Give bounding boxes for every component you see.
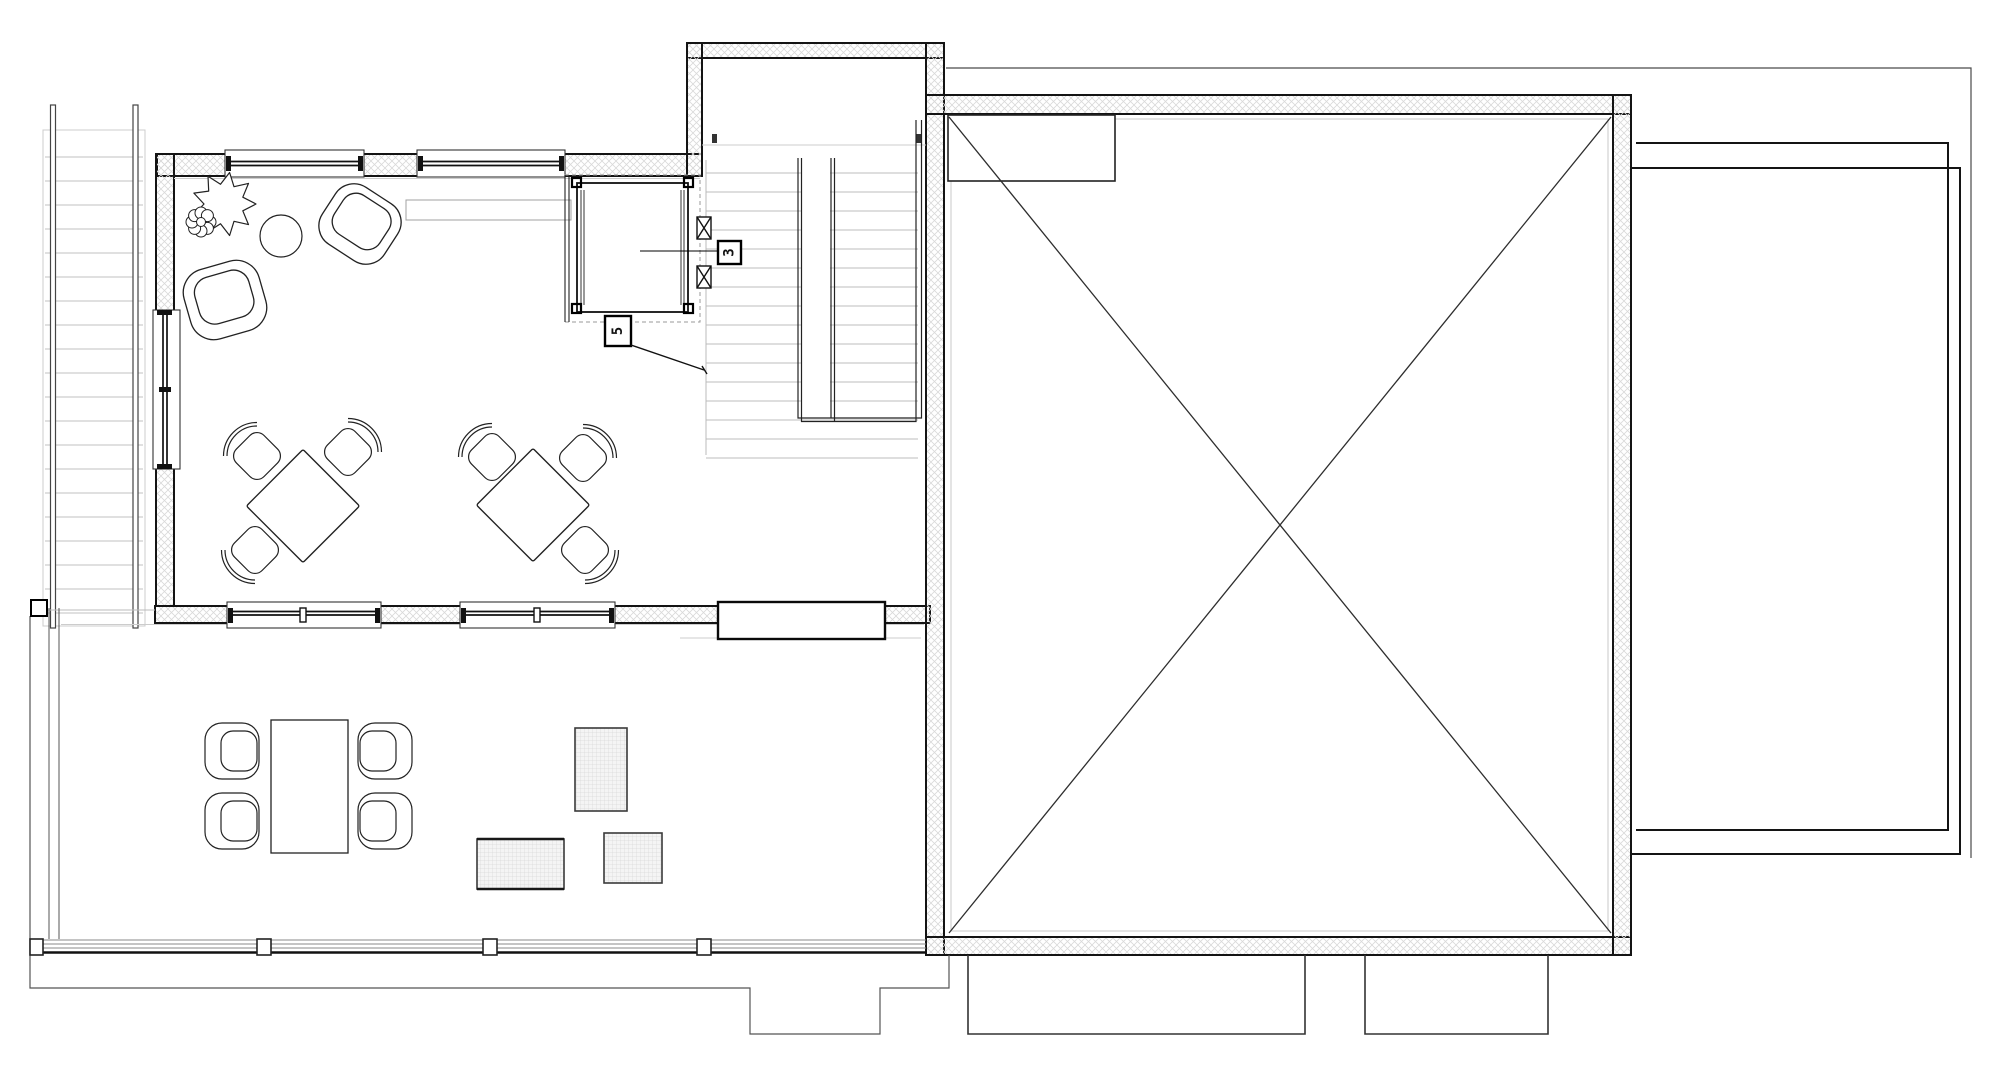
wall-void-bottom xyxy=(926,937,1631,955)
mat-small xyxy=(604,833,662,883)
exterior-stair xyxy=(43,105,145,628)
wall-void-right xyxy=(1613,95,1631,955)
mat-vertical xyxy=(575,728,627,811)
roof-outline xyxy=(946,68,1971,858)
dining-chair xyxy=(555,425,616,486)
exterior-stair-rail-left xyxy=(51,105,56,628)
terrace-chair xyxy=(205,793,259,849)
window-terrace-1 xyxy=(227,602,381,628)
lift-cab xyxy=(577,183,688,312)
sideboard xyxy=(406,200,571,220)
armchair-1 xyxy=(310,175,409,272)
window-left-wall xyxy=(153,310,180,469)
level-label-3: 3 xyxy=(718,241,741,264)
interior-stair xyxy=(706,120,922,458)
void-x-mark xyxy=(949,117,1611,933)
mat-wide xyxy=(477,839,564,889)
terrace-chair xyxy=(205,723,259,779)
terrace-corner-post xyxy=(31,600,47,616)
annex-rect-1 xyxy=(1636,143,1948,830)
floor-plan-canvas: 3 5 xyxy=(0,0,2000,1087)
lift-guide-brackets xyxy=(697,217,711,288)
void-corner-rect xyxy=(948,115,1115,181)
level-label-5: 5 xyxy=(605,316,631,346)
terrace xyxy=(30,600,926,955)
dining-chair xyxy=(224,423,285,484)
below-wall-rect-2 xyxy=(1365,955,1548,1034)
exterior-stair-rail-right xyxy=(133,105,138,628)
level-label-3-text: 3 xyxy=(722,248,738,256)
wall-vestibule-top xyxy=(687,43,944,58)
lift-door-swing xyxy=(631,345,707,374)
terrace-railing-bottom-lines xyxy=(30,940,926,948)
dining-chair xyxy=(557,522,618,583)
wall-vestibule-left xyxy=(687,43,702,176)
ground-floor-outline xyxy=(30,616,949,1034)
void-room xyxy=(948,115,1611,933)
terrace-mats xyxy=(477,728,662,889)
floor-plan-page: 3 5 xyxy=(0,0,2000,1087)
armchair-2 xyxy=(178,255,273,346)
terrace-chair xyxy=(358,793,412,849)
opening-tick-left xyxy=(712,134,717,143)
terrace-door xyxy=(718,602,885,639)
lift-shaft-left-rail xyxy=(565,175,569,322)
opening-tick-right xyxy=(916,134,921,143)
terrace-chair xyxy=(358,723,412,779)
dining-chair xyxy=(320,419,381,480)
dining-set-2 xyxy=(459,424,619,584)
plant-flower xyxy=(186,207,216,237)
annex-rect-2 xyxy=(1632,168,1960,854)
level-label-5-text: 5 xyxy=(610,327,626,335)
round-side-table xyxy=(260,215,302,257)
exterior-stair-treads xyxy=(45,157,143,613)
terrace-railing-left xyxy=(49,608,59,939)
stair-railing-gap xyxy=(802,158,830,418)
dining-set-1 xyxy=(222,419,382,584)
window-top-1 xyxy=(225,150,364,177)
below-wall-rect-1 xyxy=(968,955,1305,1034)
living-room-furniture xyxy=(178,173,619,584)
wall-void-top xyxy=(926,95,1631,114)
window-top-2 xyxy=(417,150,565,177)
right-annex xyxy=(1632,143,1960,854)
window-terrace-2 xyxy=(460,602,615,628)
terrace-table xyxy=(271,720,348,853)
wall-shared-vertical xyxy=(926,43,944,955)
